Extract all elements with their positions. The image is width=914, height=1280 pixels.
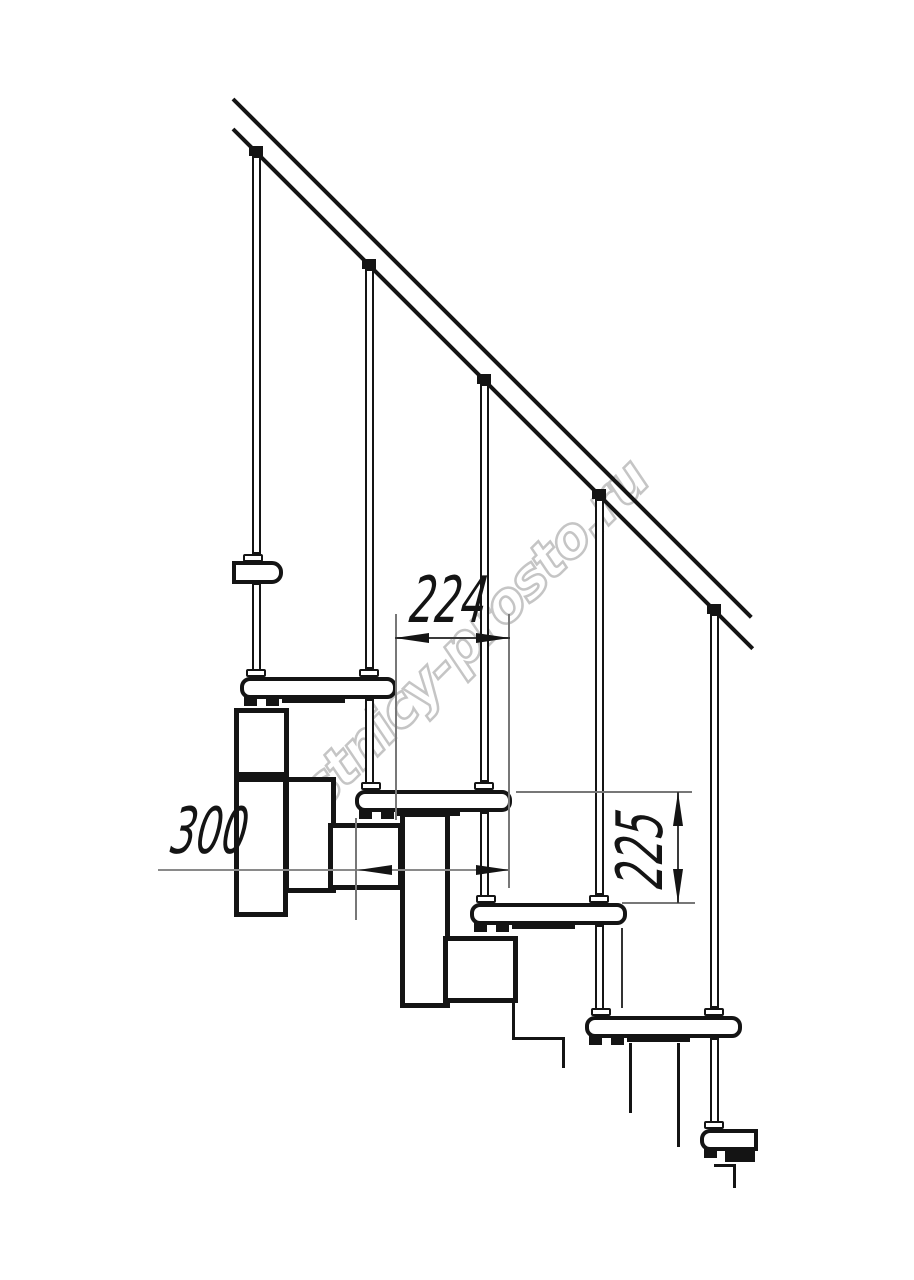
cut-line-under-tread-4-a [629,1043,632,1113]
tread-1 [240,677,397,699]
cut-line-under-module-3-h [512,1037,565,1040]
tread-3-clamp-b [496,923,509,932]
cut-line-under-tread-5-v [733,1164,736,1188]
rod-1-collar [246,669,266,677]
tread-rod-5 [710,1038,719,1129]
cut-line-under-module-3-v2 [562,1037,565,1068]
tread-5-clamp-a [704,1149,717,1158]
stringer-module-3 [443,936,518,1003]
tread-4-mount-bar [627,1036,690,1042]
baluster-5-collar [704,1008,724,1016]
rod-3-collar [476,895,496,903]
tread-5-cut [700,1129,758,1151]
tread-2 [355,790,512,812]
cut-line-under-tread-3 [621,928,623,1008]
baluster-3-cap [477,374,491,384]
tread-4-clamp-b [611,1036,624,1045]
dim-depth-arrow-left [358,865,392,875]
tread-2-clamp-b [381,810,394,819]
tread-1-clamp-a [244,697,257,706]
tread-rod-1 [252,583,261,677]
stringer-module-top [234,708,289,777]
dim-depth-ext [355,818,357,920]
cut-line-under-tread-4-b [677,1043,680,1147]
dimension-label-rise: 225 [609,807,673,892]
baluster-4-upper [595,499,604,895]
tread-1-clamp-b [266,697,279,706]
tread-3-mount-bar [512,923,575,929]
baluster-5-upper [710,614,719,1008]
baluster-1-cap [249,146,263,156]
tread-3-clamp-a [474,923,487,932]
dimension-label-run: 224 [407,569,492,633]
dimension-label-depth: 300 [168,800,253,864]
dim-run-ext-left [395,614,397,820]
tread-4-clamp-a [589,1036,602,1045]
rod-2-collar [361,782,381,790]
tread-rod-4 [595,925,604,1016]
tread-5-mount-block [725,1149,755,1162]
rod-4-collar [591,1008,611,1016]
handrail-top-line [232,98,753,619]
dim-run-ext-right [508,614,510,888]
baluster-2-cap [362,259,376,269]
baluster-3-collar [474,782,494,790]
baluster-2-upper [365,269,374,669]
dim-rise-ext-top [516,791,692,793]
handrail-bottom-line [232,128,755,651]
tread-1-mount-bar [282,697,345,703]
baluster-4-cap [592,489,606,499]
baluster-4-collar [589,895,609,903]
tread-rod-2 [365,699,374,790]
dim-rise-ext-bottom [622,902,695,904]
baluster-2-collar [359,669,379,677]
stringer-module-2 [328,823,403,890]
staircase-technical-drawing: lestnicy-prosto.ru 224 300 225 [0,0,914,1280]
baluster-1-upper [252,156,261,554]
drawing-geometry [0,0,914,1280]
rod-5-collar [704,1121,724,1129]
dim-depth-arrow-right [476,865,510,875]
baluster-5-cap [707,604,721,614]
tread-3 [470,903,627,925]
cut-line-under-module-3-v1 [512,1003,515,1040]
tread-2-clamp-a [359,810,372,819]
dim-depth-line [158,869,510,871]
tread-upper-cut [232,561,283,584]
baluster-1-collar [243,554,263,562]
tread-rod-3 [480,812,489,903]
tread-4 [585,1016,742,1038]
tread-2-mount-bar [397,810,460,816]
